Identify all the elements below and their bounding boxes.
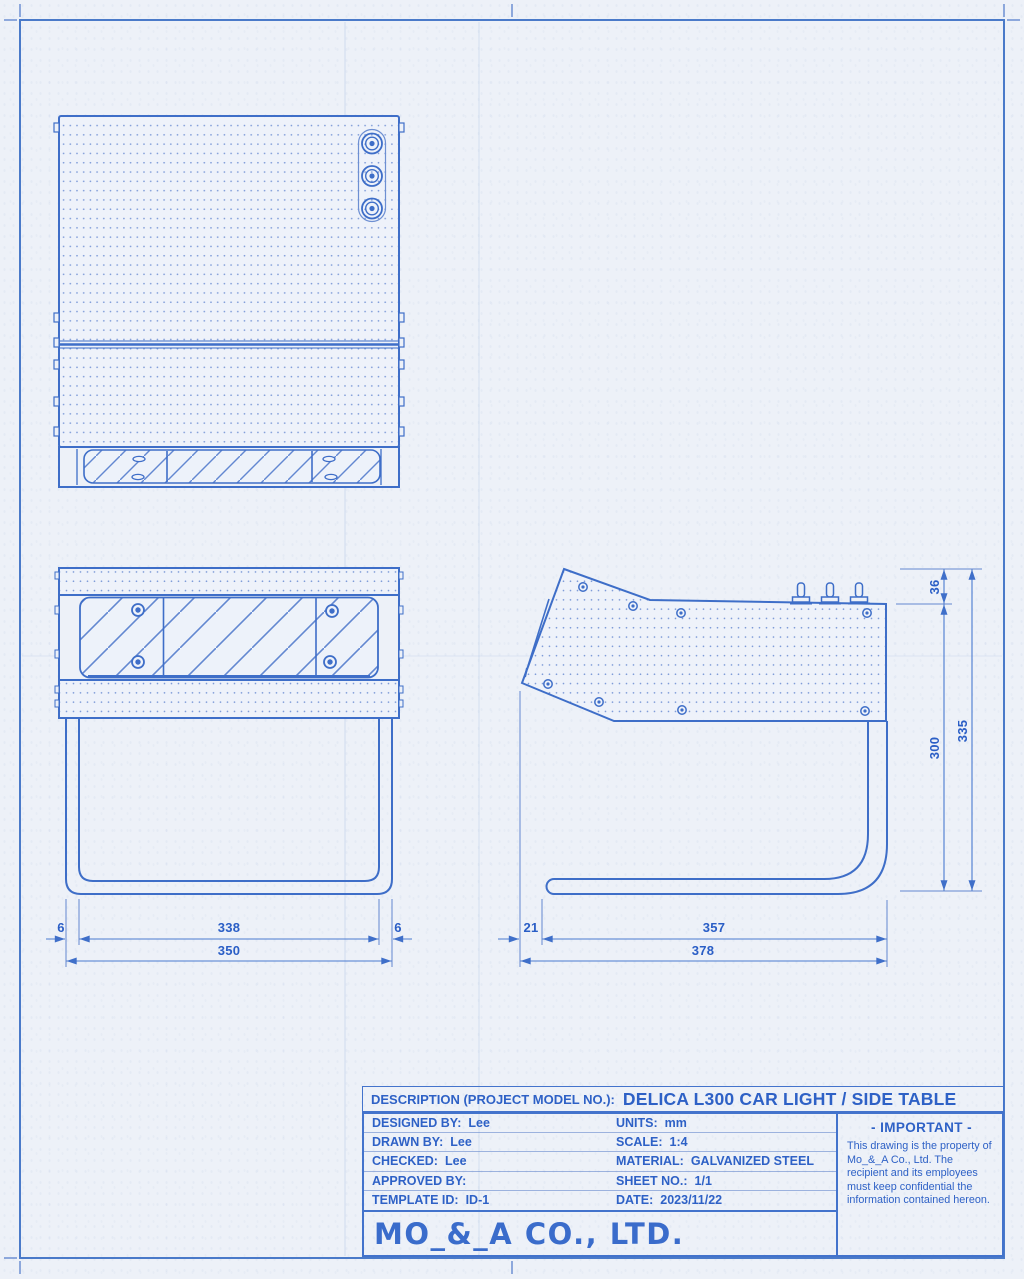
dim-side-base-length: 357 [703, 920, 726, 935]
height-dimensions: 36 300 335 [896, 569, 982, 891]
dim-front-tube-left: 6 [57, 920, 65, 935]
drawn-by-value: Lee [450, 1135, 472, 1149]
template-id-value: ID-1 [466, 1193, 490, 1207]
dim-overall-height: 335 [955, 720, 970, 743]
sheet-no-value: 1/1 [695, 1174, 712, 1188]
company-name: MO_&_A CO., LTD. [364, 1210, 836, 1255]
scale-label: SCALE: [616, 1135, 663, 1149]
important-notice-title: - IMPORTANT - [847, 1120, 996, 1135]
title-block-row: DESIGNED BY:Lee UNITS:mm [364, 1114, 836, 1133]
lens-strip-top [59, 447, 399, 487]
material-label: MATERIAL: [616, 1154, 684, 1168]
top-view [54, 116, 404, 487]
switch-knobs-top [359, 130, 386, 222]
tube-leg-frame-side [547, 721, 888, 894]
front-top-band [59, 568, 399, 595]
units-value: mm [665, 1116, 687, 1130]
top-view-body-panel [59, 116, 399, 447]
title-block-row: DRAWN BY:Lee SCALE:1:4 [364, 1133, 836, 1152]
important-notice-body: This drawing is the property of Mo_&_A C… [847, 1140, 996, 1208]
description-label: DESCRIPTION (PROJECT MODEL NO.): [363, 1092, 615, 1107]
dim-front-overall-width: 350 [218, 943, 241, 958]
date-label: DATE: [616, 1193, 653, 1207]
title-block: DESIGNED BY:Lee UNITS:mm DRAWN BY:Lee SC… [362, 1112, 1004, 1257]
sheet-no-label: SHEET NO.: [616, 1174, 688, 1188]
toggle-switch [819, 583, 841, 604]
toggle-switch [790, 583, 812, 604]
units-label: UNITS: [616, 1116, 658, 1130]
dim-front-inner-width: 338 [218, 920, 241, 935]
title-block-row: CHECKED:Lee MATERIAL:GALVANIZED STEEL [364, 1152, 836, 1171]
designed-by-label: DESIGNED BY: [372, 1116, 461, 1130]
title-block-row: TEMPLATE ID:ID-1 DATE:2023/11/22 [364, 1191, 836, 1210]
drawn-by-label: DRAWN BY: [372, 1135, 443, 1149]
date-value: 2023/11/22 [660, 1193, 722, 1207]
scale-value: 1:4 [670, 1135, 688, 1149]
title-block-description-row: DESCRIPTION (PROJECT MODEL NO.): DELICA … [362, 1086, 1004, 1112]
side-view-dimensions: 21 357 378 [498, 691, 887, 967]
approved-by-label: APPROVED BY: [372, 1174, 466, 1188]
front-bottom-band [59, 680, 399, 718]
template-id-label: TEMPLATE ID: [372, 1193, 459, 1207]
description-value: DELICA L300 CAR LIGHT / SIDE TABLE [623, 1089, 957, 1110]
title-block-row: APPROVED BY: SHEET NO.:1/1 [364, 1172, 836, 1191]
blueprint-sheet: 6 338 6 350 [0, 0, 1024, 1279]
dim-side-front-overhang: 21 [523, 920, 538, 935]
dim-side-overall-depth: 378 [692, 943, 715, 958]
material-value: GALVANIZED STEEL [691, 1154, 814, 1168]
dim-body-height: 300 [927, 737, 942, 760]
toggle-switches-side [790, 583, 870, 604]
checked-label: CHECKED: [372, 1154, 438, 1168]
title-block-grid: DESIGNED BY:Lee UNITS:mm DRAWN BY:Lee SC… [364, 1114, 836, 1210]
checked-value: Lee [445, 1154, 467, 1168]
dim-front-tube-right: 6 [394, 920, 402, 935]
front-view [55, 568, 403, 894]
dim-switch-offset: 36 [927, 579, 942, 594]
designed-by-value: Lee [468, 1116, 490, 1130]
side-view [522, 569, 887, 894]
front-view-dimensions: 6 338 6 350 [46, 899, 412, 967]
toggle-switch [848, 583, 870, 604]
important-notice-box: - IMPORTANT - This drawing is the proper… [836, 1114, 1005, 1255]
tube-leg-frame-front [66, 718, 392, 894]
